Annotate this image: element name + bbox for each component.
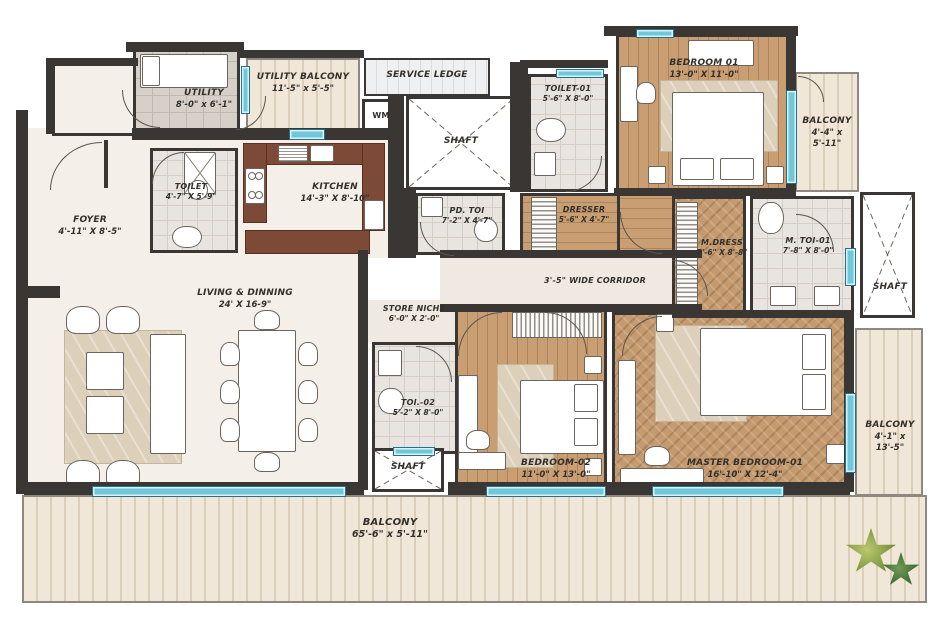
label-wm: WM <box>363 111 399 121</box>
coffee-table <box>86 352 124 390</box>
window-shaft-bottom <box>393 447 435 456</box>
window-master-balcony <box>652 486 784 497</box>
dining-chair <box>220 342 240 366</box>
wall-kitchen-row-top <box>132 128 390 140</box>
label-m-dress: M.DRESS 5'-6" X 8'-8" <box>696 238 748 258</box>
burner-icon <box>255 191 263 199</box>
wall-utility-top <box>126 42 244 52</box>
chair <box>466 430 490 450</box>
wall-master-top <box>672 310 854 318</box>
nightstand <box>766 166 784 184</box>
label-shaft-top: SHAFT <box>426 136 496 148</box>
label-m-toi-01: M. TOI-01 7'-8" X 8'-0" <box>766 236 850 256</box>
chair <box>636 82 656 104</box>
room-shaft-right <box>860 192 915 318</box>
washbasin <box>534 152 556 176</box>
window-mtoi-shaft <box>845 248 856 286</box>
nightstand <box>584 356 602 374</box>
dining-chair <box>254 452 280 472</box>
label-kitchen: KITCHEN 14'-3" X 8'-10" <box>282 182 388 205</box>
pillow <box>574 418 598 446</box>
window-bedroom01-balcony <box>786 90 797 184</box>
wall-foyer-stub <box>16 286 60 298</box>
wardrobe-tall <box>618 360 636 455</box>
label-toilet: TOILET 4'-7" X 5'-9" <box>150 182 232 202</box>
dining-table <box>238 330 296 452</box>
nightstand <box>648 166 666 184</box>
washbasin <box>770 286 796 306</box>
dining-chair <box>254 310 280 330</box>
wall-living-right <box>358 250 368 490</box>
floor-plan: UTILITY 8'-0" x 6'-1" UTILITY BALCONY 11… <box>0 0 948 621</box>
window-living-balcony <box>92 486 346 497</box>
wall-shaft-toilet01-divider <box>510 62 528 192</box>
toilet-bowl <box>758 202 784 234</box>
pillow <box>574 384 598 412</box>
dining-chair <box>298 418 318 442</box>
wall-corridor-top <box>440 250 702 258</box>
label-balcony-bottom: BALCONY 65'-6" x 5'-11" <box>306 516 474 541</box>
armchair <box>66 306 100 334</box>
sofa <box>150 334 186 454</box>
wardrobe <box>676 202 698 314</box>
window-bedroom02-balcony <box>486 486 606 497</box>
label-toi-02: TOI.-02 5'-2" X 8'-0" <box>380 398 456 418</box>
dining-chair <box>298 342 318 366</box>
window-toilet01 <box>556 69 604 78</box>
label-living-dining: LIVING & DINNING 24' X 16-9" <box>150 288 340 311</box>
label-foyer: FOYER 4'-11" X 8'-5" <box>46 215 134 238</box>
washbasin <box>814 286 840 306</box>
label-bedroom-02: BEDROOM-02 11'-0" X 13'-0" <box>496 458 616 481</box>
window-kitchen-utility-balcony <box>289 129 325 140</box>
coffee-table <box>86 396 124 434</box>
dining-chair <box>220 418 240 442</box>
pillow <box>142 56 160 86</box>
pillow <box>802 334 826 370</box>
label-master-bedroom: MASTER BEDROOM-01 16'-10" X 12'-4" <box>650 458 840 481</box>
kitchen-board <box>310 145 334 162</box>
burner-icon <box>255 172 263 180</box>
label-utility-balcony: UTILITY BALCONY 11'-5" x 5'-5" <box>255 72 351 95</box>
pillow <box>720 158 754 180</box>
armchair <box>106 306 140 334</box>
wall-bedroom01-top <box>604 26 798 36</box>
label-pd-toi: PD. TOI 7'-2" X 4'-7" <box>430 206 504 226</box>
wall-utility-balcony-top <box>238 50 364 58</box>
pillow <box>802 374 826 410</box>
wall-lobby-top <box>46 58 138 66</box>
wall-toilet01-top <box>520 60 608 68</box>
label-store-niche: STORE NICHE 6'-0" X 2'-0" <box>370 304 458 324</box>
dining-chair <box>220 380 240 404</box>
wall-bedroom01-bottom <box>614 188 796 196</box>
label-balcony-top-right: BALCONY 4'-4" x 5'-11" <box>798 116 856 150</box>
label-balcony-right: BALCONY 4'-1" x 13'-5" <box>862 420 918 454</box>
toilet-bowl <box>172 226 202 248</box>
room-balcony-bottom <box>22 495 927 603</box>
wall-pdtoi-left <box>402 188 416 258</box>
window-bedroom01-top <box>636 29 674 38</box>
pillow <box>680 158 714 180</box>
label-toilet-01: TOILET-01 5'-6" X 8'-0" <box>530 84 606 104</box>
label-service-ledge: SERVICE LEDGE <box>372 70 482 82</box>
toilet-bowl <box>536 118 566 142</box>
label-utility: UTILITY 8'-0" x 6'-1" <box>158 88 250 111</box>
wall-corridor-bottom <box>440 304 702 312</box>
washbasin <box>378 350 402 376</box>
room-balcony-right <box>855 328 923 496</box>
label-shaft-bottom: SHAFT <box>380 462 436 474</box>
hob <box>245 168 265 204</box>
label-bedroom-01: BEDROOM 01 13'-0" X 11'-0" <box>638 58 770 81</box>
label-corridor: 3'-5" WIDE CORRIDOR <box>528 276 662 286</box>
kitchen-island <box>245 230 370 254</box>
shaft-cross-icon <box>863 195 912 315</box>
wall-left-outer <box>16 110 28 494</box>
label-dresser: DRESSER 5'-6" X 4'-7" <box>548 205 620 225</box>
window-utility-balcony <box>241 66 250 114</box>
entry-door-leaf <box>104 140 108 188</box>
label-shaft-right: SHAFT <box>868 282 912 294</box>
wall-lobby-left <box>46 58 54 134</box>
window-master-right <box>845 393 856 473</box>
kitchen-sink <box>278 145 308 162</box>
dining-chair <box>298 380 318 404</box>
